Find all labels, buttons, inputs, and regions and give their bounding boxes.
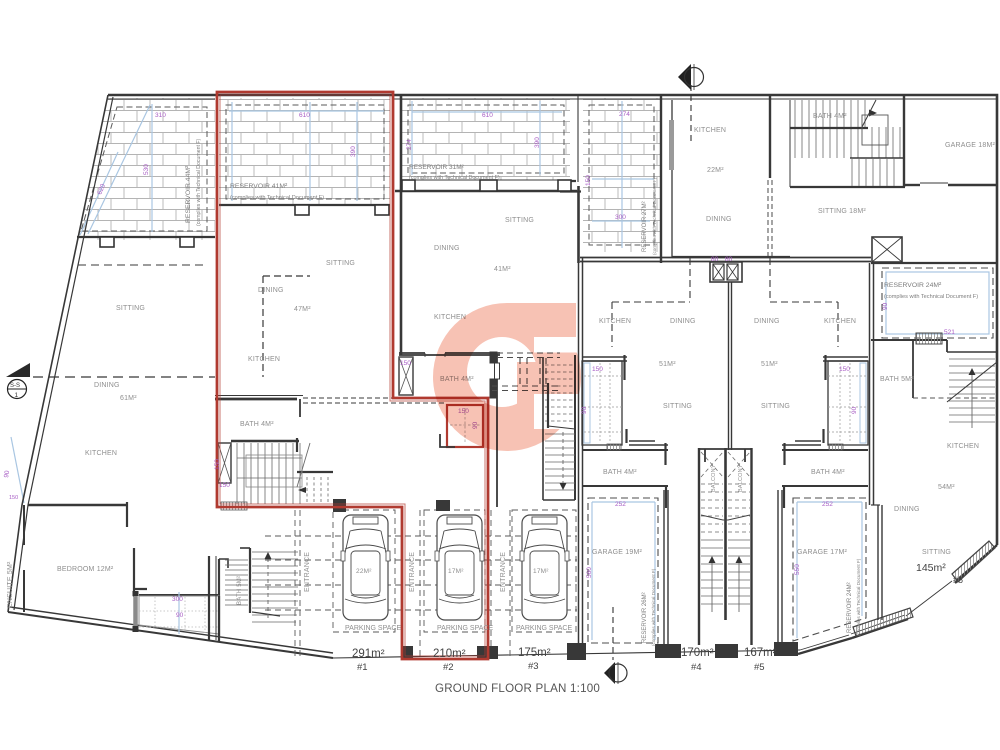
svg-text:252: 252 <box>615 501 626 508</box>
svg-text:SITTING: SITTING <box>326 260 355 267</box>
svg-text:GARAGE 19M²: GARAGE 19M² <box>592 549 643 556</box>
svg-text:RESERVOIR 27M²: RESERVOIR 27M² <box>642 201 648 252</box>
svg-text:BATH 5M²: BATH 5M² <box>237 576 243 605</box>
svg-text:GARAGE 17M²: GARAGE 17M² <box>797 549 848 556</box>
svg-text:90: 90 <box>3 470 11 479</box>
svg-text:DINING: DINING <box>434 245 460 252</box>
svg-text:521: 521 <box>944 329 955 336</box>
svg-text:#4: #4 <box>691 662 702 673</box>
svg-text:(complies with Technical Docum: (complies with Technical Document F) <box>651 568 656 646</box>
svg-text:(complies with Technical Docum: (complies with Technical Document F) <box>652 177 657 255</box>
svg-text:17M²: 17M² <box>533 568 549 575</box>
svg-text:310: 310 <box>155 112 166 119</box>
svg-text:(complies with Technical Docum: (complies with Technical Document F) <box>230 195 324 201</box>
svg-text:KITCHEN: KITCHEN <box>824 318 856 325</box>
svg-text:BATH 4M²: BATH 4M² <box>240 421 274 428</box>
svg-text:550: 550 <box>794 564 801 575</box>
svg-text:DINING: DINING <box>258 287 284 294</box>
svg-text:KITCHEN: KITCHEN <box>85 450 117 457</box>
svg-text:560: 560 <box>586 567 593 578</box>
svg-text:DINING: DINING <box>754 318 780 325</box>
svg-text:150: 150 <box>592 366 603 373</box>
svg-text:150: 150 <box>839 366 850 373</box>
svg-text:(complies with Technical Docum: (complies with Technical Document F) <box>856 558 861 636</box>
svg-text:150: 150 <box>585 175 592 186</box>
svg-text:300: 300 <box>172 596 183 603</box>
svg-text:SITTING: SITTING <box>922 549 951 556</box>
svg-text:150: 150 <box>219 482 230 489</box>
svg-text:ENSUITE 5M²: ENSUITE 5M² <box>7 561 14 608</box>
svg-text:610: 610 <box>482 112 493 119</box>
svg-text:SITTING: SITTING <box>116 305 145 312</box>
svg-text:51M²: 51M² <box>659 361 676 368</box>
svg-text:17M²: 17M² <box>448 568 464 575</box>
svg-text:170m²: 170m² <box>681 647 714 659</box>
svg-text:1: 1 <box>15 392 19 399</box>
svg-text:175m²: 175m² <box>518 647 551 659</box>
svg-text:GROUND FLOOR PLAN 1:100: GROUND FLOOR PLAN 1:100 <box>435 682 600 695</box>
svg-text:KITCHEN: KITCHEN <box>947 443 979 450</box>
svg-text:BATH 5M²: BATH 5M² <box>880 376 914 383</box>
svg-text:#5: #5 <box>754 662 765 673</box>
svg-text:610: 610 <box>299 112 310 119</box>
svg-text:150: 150 <box>214 459 221 470</box>
svg-text:291m²: 291m² <box>352 648 385 660</box>
svg-text:ENTRANCE: ENTRANCE <box>409 552 416 592</box>
svg-text:SITTING: SITTING <box>663 403 692 410</box>
svg-text:BALCONY: BALCONY <box>738 464 744 492</box>
svg-text:22M²: 22M² <box>707 167 724 174</box>
svg-text:BALCONY: BALCONY <box>711 464 717 492</box>
svg-text:145m²: 145m² <box>916 562 946 574</box>
svg-text:90: 90 <box>851 406 858 414</box>
svg-text:KITCHEN: KITCHEN <box>694 127 726 134</box>
svg-text:SITTING: SITTING <box>505 217 534 224</box>
svg-text:300: 300 <box>615 214 626 221</box>
svg-text:RESERVOIR 26M²: RESERVOIR 26M² <box>642 592 648 643</box>
svg-text:150: 150 <box>400 360 411 367</box>
svg-text:80: 80 <box>725 256 733 263</box>
svg-text:90: 90 <box>882 302 889 310</box>
svg-text:BATH 4M²: BATH 4M² <box>603 469 637 476</box>
svg-text:150: 150 <box>9 495 18 501</box>
svg-text:#2: #2 <box>443 662 454 673</box>
svg-text:252: 252 <box>822 501 833 508</box>
svg-text:RESERVOIR 24M²: RESERVOIR 24M² <box>884 282 942 289</box>
svg-text:KITCHEN: KITCHEN <box>599 318 631 325</box>
svg-text:90: 90 <box>176 612 184 619</box>
svg-text:DINING: DINING <box>94 382 120 389</box>
svg-text:DINING: DINING <box>894 506 920 513</box>
svg-text:ENTRANCE: ENTRANCE <box>304 552 311 592</box>
svg-text:54M²: 54M² <box>938 484 955 491</box>
svg-text:390: 390 <box>534 137 541 148</box>
svg-text:530: 530 <box>143 164 150 175</box>
svg-text:(complies with Technical Docum: (complies with Technical Document F) <box>196 138 202 226</box>
svg-text:BATH 4M²: BATH 4M² <box>813 113 847 120</box>
svg-text:390: 390 <box>350 146 357 157</box>
svg-text:#3: #3 <box>528 661 539 672</box>
svg-text:ENTRANCE: ENTRANCE <box>500 552 507 592</box>
svg-text:BATH 4M²: BATH 4M² <box>811 469 845 476</box>
svg-text:90: 90 <box>581 406 588 414</box>
svg-text:PARKING SPACE: PARKING SPACE <box>516 625 572 632</box>
svg-text:167m²: 167m² <box>744 647 777 659</box>
svg-text:210m²: 210m² <box>433 648 466 660</box>
svg-text:GARAGE 18M²: GARAGE 18M² <box>945 142 996 149</box>
svg-text:PARKING SPACE: PARKING SPACE <box>437 625 493 632</box>
svg-text:274: 274 <box>406 139 413 150</box>
svg-text:(complies with Technical Docum: (complies with Technical Document F) <box>884 294 978 300</box>
svg-text:(complies with Technical Docum: (complies with Technical Document F) <box>409 175 500 181</box>
svg-text:RESERVOIR 41M²: RESERVOIR 41M² <box>230 183 288 190</box>
svg-text:SITTING: SITTING <box>761 403 790 410</box>
svg-text:51M²: 51M² <box>761 361 778 368</box>
svg-text:RESERVOIR 31M²: RESERVOIR 31M² <box>409 164 465 171</box>
svg-text:RESERVOIR 24M²: RESERVOIR 24M² <box>847 582 853 633</box>
svg-text:RESERVOIR 44M²: RESERVOIR 44M² <box>185 165 192 223</box>
svg-text:274: 274 <box>619 111 630 118</box>
svg-text:BEDROOM 12M²: BEDROOM 12M² <box>57 566 114 573</box>
svg-text:61M²: 61M² <box>120 395 137 402</box>
svg-text:22M²: 22M² <box>356 568 372 575</box>
svg-text:#6: #6 <box>953 575 963 585</box>
svg-text:47M²: 47M² <box>294 306 311 313</box>
svg-text:DINING: DINING <box>706 216 732 223</box>
svg-text:S-S: S-S <box>10 383 20 389</box>
svg-text:DINING: DINING <box>670 318 696 325</box>
svg-text:41M²: 41M² <box>494 266 511 273</box>
svg-text:PARKING SPACE: PARKING SPACE <box>345 625 401 632</box>
svg-text:KITCHEN: KITCHEN <box>248 356 280 363</box>
svg-text:80: 80 <box>711 256 719 263</box>
svg-text:#1: #1 <box>357 662 368 673</box>
svg-text:SITTING 18M²: SITTING 18M² <box>818 208 866 215</box>
